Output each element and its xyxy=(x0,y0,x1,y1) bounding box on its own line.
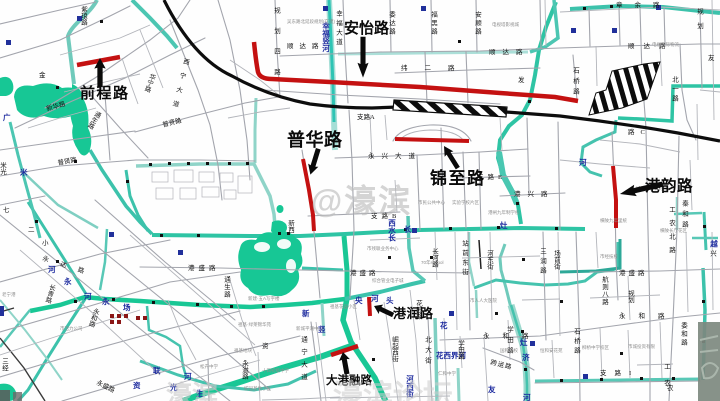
svg-text:灶: 灶 xyxy=(500,220,508,230)
svg-text:电视国际物流: 电视国际物流 xyxy=(652,41,679,48)
svg-text:路C: 路C xyxy=(628,127,651,136)
svg-text:纺园基地小区: 纺园基地小区 xyxy=(244,385,271,392)
svg-text:吴东路北延段规划(在建): 吴东路北延段规划(在建) xyxy=(287,18,335,25)
svg-text:永和路: 永和路 xyxy=(619,311,678,320)
svg-text:友: 友 xyxy=(708,53,715,62)
svg-text:前程路: 前程路 xyxy=(80,84,130,102)
svg-text:二: 二 xyxy=(28,227,35,234)
svg-text:港兴路: 港兴路 xyxy=(514,189,555,198)
svg-text:松卉中学: 松卉中学 xyxy=(200,363,218,370)
svg-text:濠滨: 濠滨 xyxy=(166,380,218,401)
svg-text:顺达路: 顺达路 xyxy=(287,41,325,50)
svg-text:市人人大医院: 市人人大医院 xyxy=(470,297,497,304)
svg-text:港润路: 港润路 xyxy=(393,306,434,321)
svg-text:章余路: 章余路 xyxy=(616,0,672,9)
svg-text:河: 河 xyxy=(84,291,92,301)
svg-text:联: 联 xyxy=(153,365,161,375)
svg-text:河: 河 xyxy=(371,293,379,303)
svg-text:花: 花 xyxy=(440,320,448,330)
svg-text:十四初级中学: 十四初级中学 xyxy=(262,367,289,374)
svg-text:支路A: 支路A xyxy=(357,112,375,121)
svg-text:长: 长 xyxy=(404,224,412,234)
svg-text:@濠滨: @濠滨 xyxy=(311,183,412,219)
svg-text:祖基花园小区: 祖基花园小区 xyxy=(330,303,357,310)
svg-text:场: 场 xyxy=(123,302,131,312)
svg-text:纬二路: 纬二路 xyxy=(401,63,472,72)
svg-text:金: 金 xyxy=(39,70,46,79)
svg-text:济: 济 xyxy=(522,352,530,362)
svg-text:市民公共中心: 市民公共中心 xyxy=(418,199,445,206)
svg-text:永: 永 xyxy=(101,296,110,306)
svg-text:普华路: 普华路 xyxy=(287,129,343,150)
svg-text:河: 河 xyxy=(523,392,531,401)
svg-text:横陂长庁花区: 横陂长庁花区 xyxy=(660,227,687,234)
svg-text:小: 小 xyxy=(42,238,49,247)
svg-text:市残联业务中心: 市残联业务中心 xyxy=(367,245,399,252)
svg-text:濠滨论坛: 濠滨论坛 xyxy=(333,379,453,401)
svg-text:柳桥中学校区: 柳桥中学校区 xyxy=(582,344,609,351)
svg-text:新: 新 xyxy=(302,308,310,318)
svg-text:国和学校: 国和学校 xyxy=(500,347,518,354)
svg-text:头: 头 xyxy=(386,295,394,305)
svg-text:资: 资 xyxy=(133,380,141,390)
svg-text:港盛路: 港盛路 xyxy=(350,268,379,277)
svg-text:锦至路: 锦至路 xyxy=(430,168,486,188)
svg-text:农: 农 xyxy=(667,383,674,392)
svg-text:米: 米 xyxy=(20,167,28,177)
svg-text:越: 越 xyxy=(709,239,718,249)
svg-text:安怡路: 安怡路 xyxy=(344,19,390,37)
svg-text:仁和中学: 仁和中学 xyxy=(438,370,456,377)
svg-text:支路I: 支路I xyxy=(600,368,639,377)
svg-text:幸福竖河: 幸福竖河 xyxy=(321,21,330,54)
svg-text:灶: 灶 xyxy=(520,337,528,347)
svg-text:综合管业电子城: 综合管业电子城 xyxy=(372,277,404,284)
svg-text:电视塔影视城: 电视塔影视城 xyxy=(492,21,519,28)
svg-text:顺达路: 顺达路 xyxy=(489,47,530,56)
svg-text:发: 发 xyxy=(518,75,525,84)
svg-text:新城平潮中心: 新城平潮中心 xyxy=(296,325,323,332)
svg-text:市经技校: 市经技校 xyxy=(600,253,618,260)
svg-text:市城投资有限: 市城投资有限 xyxy=(628,343,655,350)
svg-text:港盛路: 港盛路 xyxy=(188,263,220,272)
svg-text:河: 河 xyxy=(48,264,56,274)
svg-text:资: 资 xyxy=(262,341,269,350)
svg-text:永兴大道: 永兴大道 xyxy=(368,151,422,160)
svg-text:恒和安花苑: 恒和安花苑 xyxy=(540,347,563,354)
svg-text:横陂九年里统: 横陂九年里统 xyxy=(600,217,627,224)
svg-text:河: 河 xyxy=(579,157,587,167)
svg-text:市活力公司: 市活力公司 xyxy=(60,325,83,332)
svg-text:七: 七 xyxy=(3,205,10,214)
svg-text:西水长: 西水长 xyxy=(387,219,396,243)
svg-text:老宁港: 老宁港 xyxy=(2,291,16,298)
svg-text:祖基·绿莱锦华苑: 祖基·绿莱锦华苑 xyxy=(238,321,271,328)
svg-text:港闸九年制学校: 港闸九年制学校 xyxy=(488,209,520,216)
svg-text:祖基地块: 祖基地块 xyxy=(234,347,252,354)
svg-text:港盛路: 港盛路 xyxy=(619,268,648,277)
svg-text:实验学校片区: 实验学校片区 xyxy=(452,199,479,206)
svg-text:永: 永 xyxy=(63,276,72,286)
svg-text:友: 友 xyxy=(487,384,496,394)
svg-text:新建·五A写字楼: 新建·五A写字楼 xyxy=(248,295,280,302)
svg-text:广: 广 xyxy=(3,112,11,122)
